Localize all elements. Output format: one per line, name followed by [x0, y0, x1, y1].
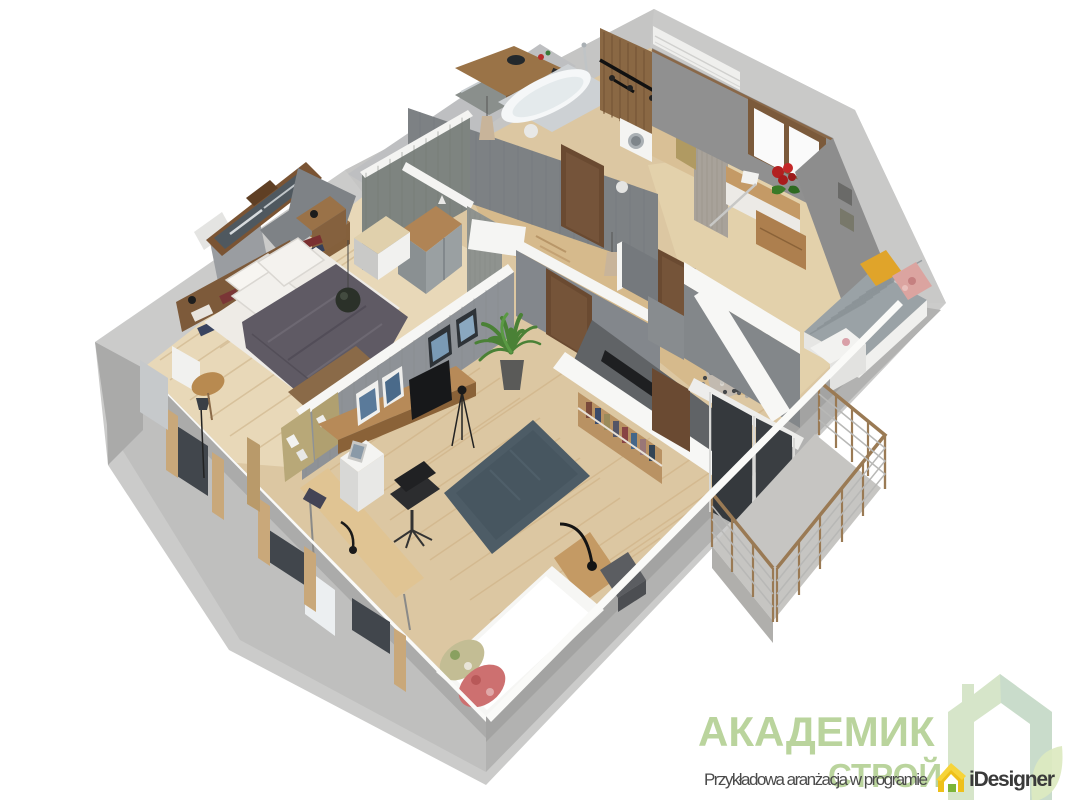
svg-text:iDesigner: iDesigner: [969, 768, 1055, 791]
svg-text:Przykładowa aranżacja w progra: Przykładowa aranżacja w programie: [704, 770, 928, 789]
svg-text:АКАДЕМИК: АКАДЕМИК: [698, 708, 935, 755]
